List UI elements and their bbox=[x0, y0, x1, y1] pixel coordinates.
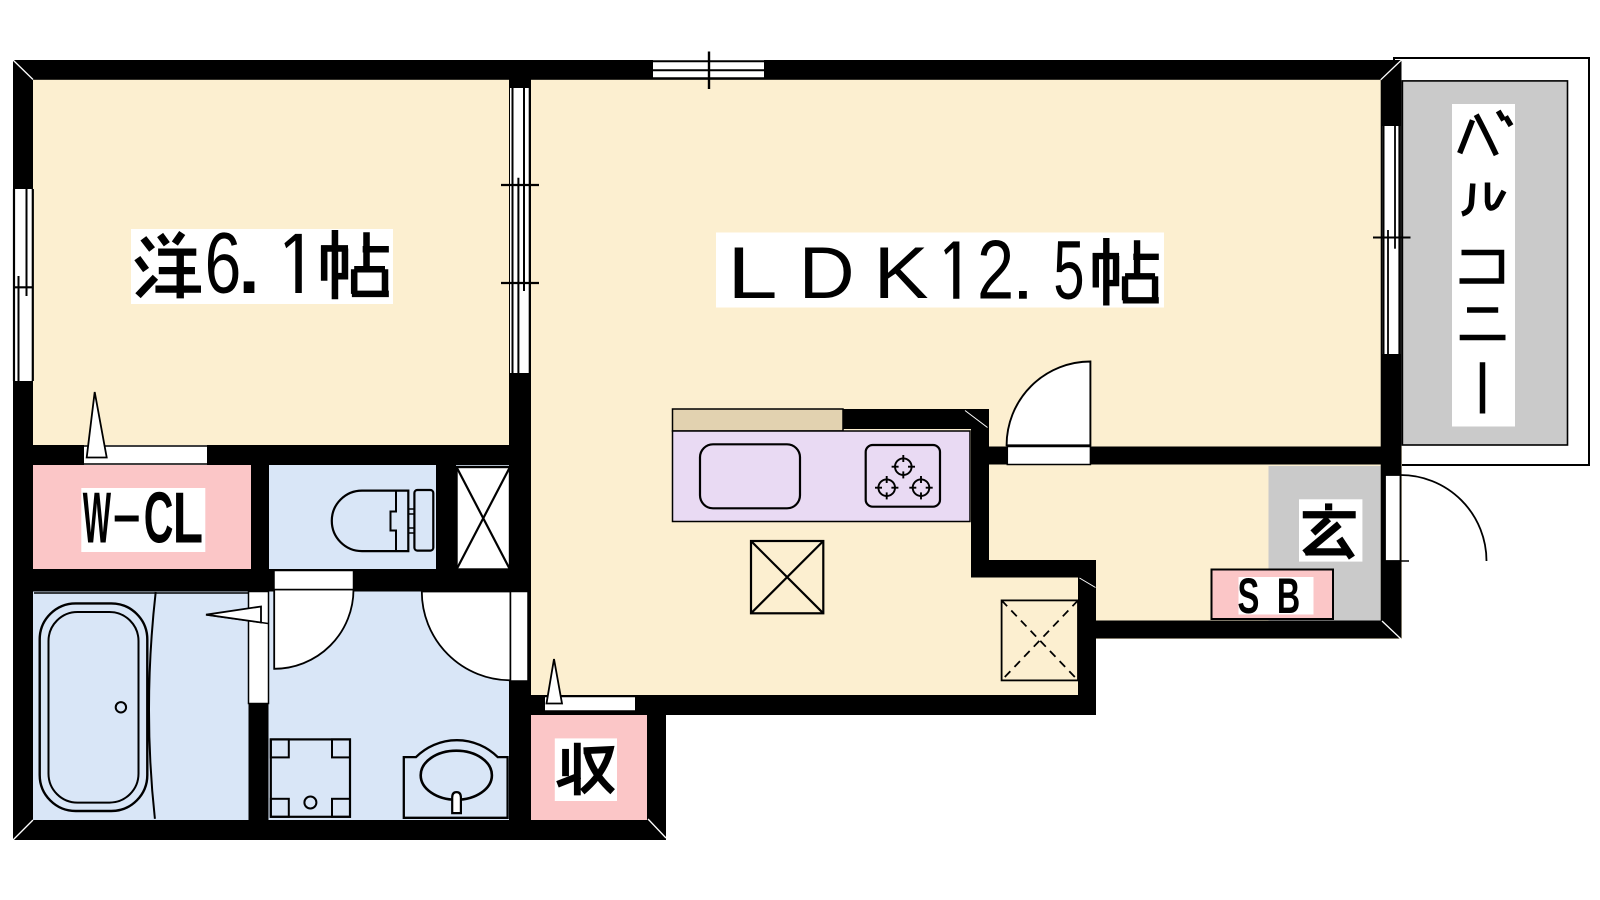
svg-text:L: L bbox=[727, 233, 777, 314]
svg-text:D: D bbox=[799, 232, 855, 314]
svg-text:5: 5 bbox=[1053, 225, 1084, 318]
svg-text:L: L bbox=[173, 479, 203, 559]
svg-text:2: 2 bbox=[977, 223, 1014, 316]
svg-text:6: 6 bbox=[205, 215, 242, 312]
svg-text:W: W bbox=[83, 477, 111, 558]
svg-text:K: K bbox=[874, 234, 929, 315]
svg-text:C: C bbox=[144, 479, 174, 559]
svg-text:S: S bbox=[1238, 568, 1260, 624]
svg-text:B: B bbox=[1277, 568, 1300, 624]
